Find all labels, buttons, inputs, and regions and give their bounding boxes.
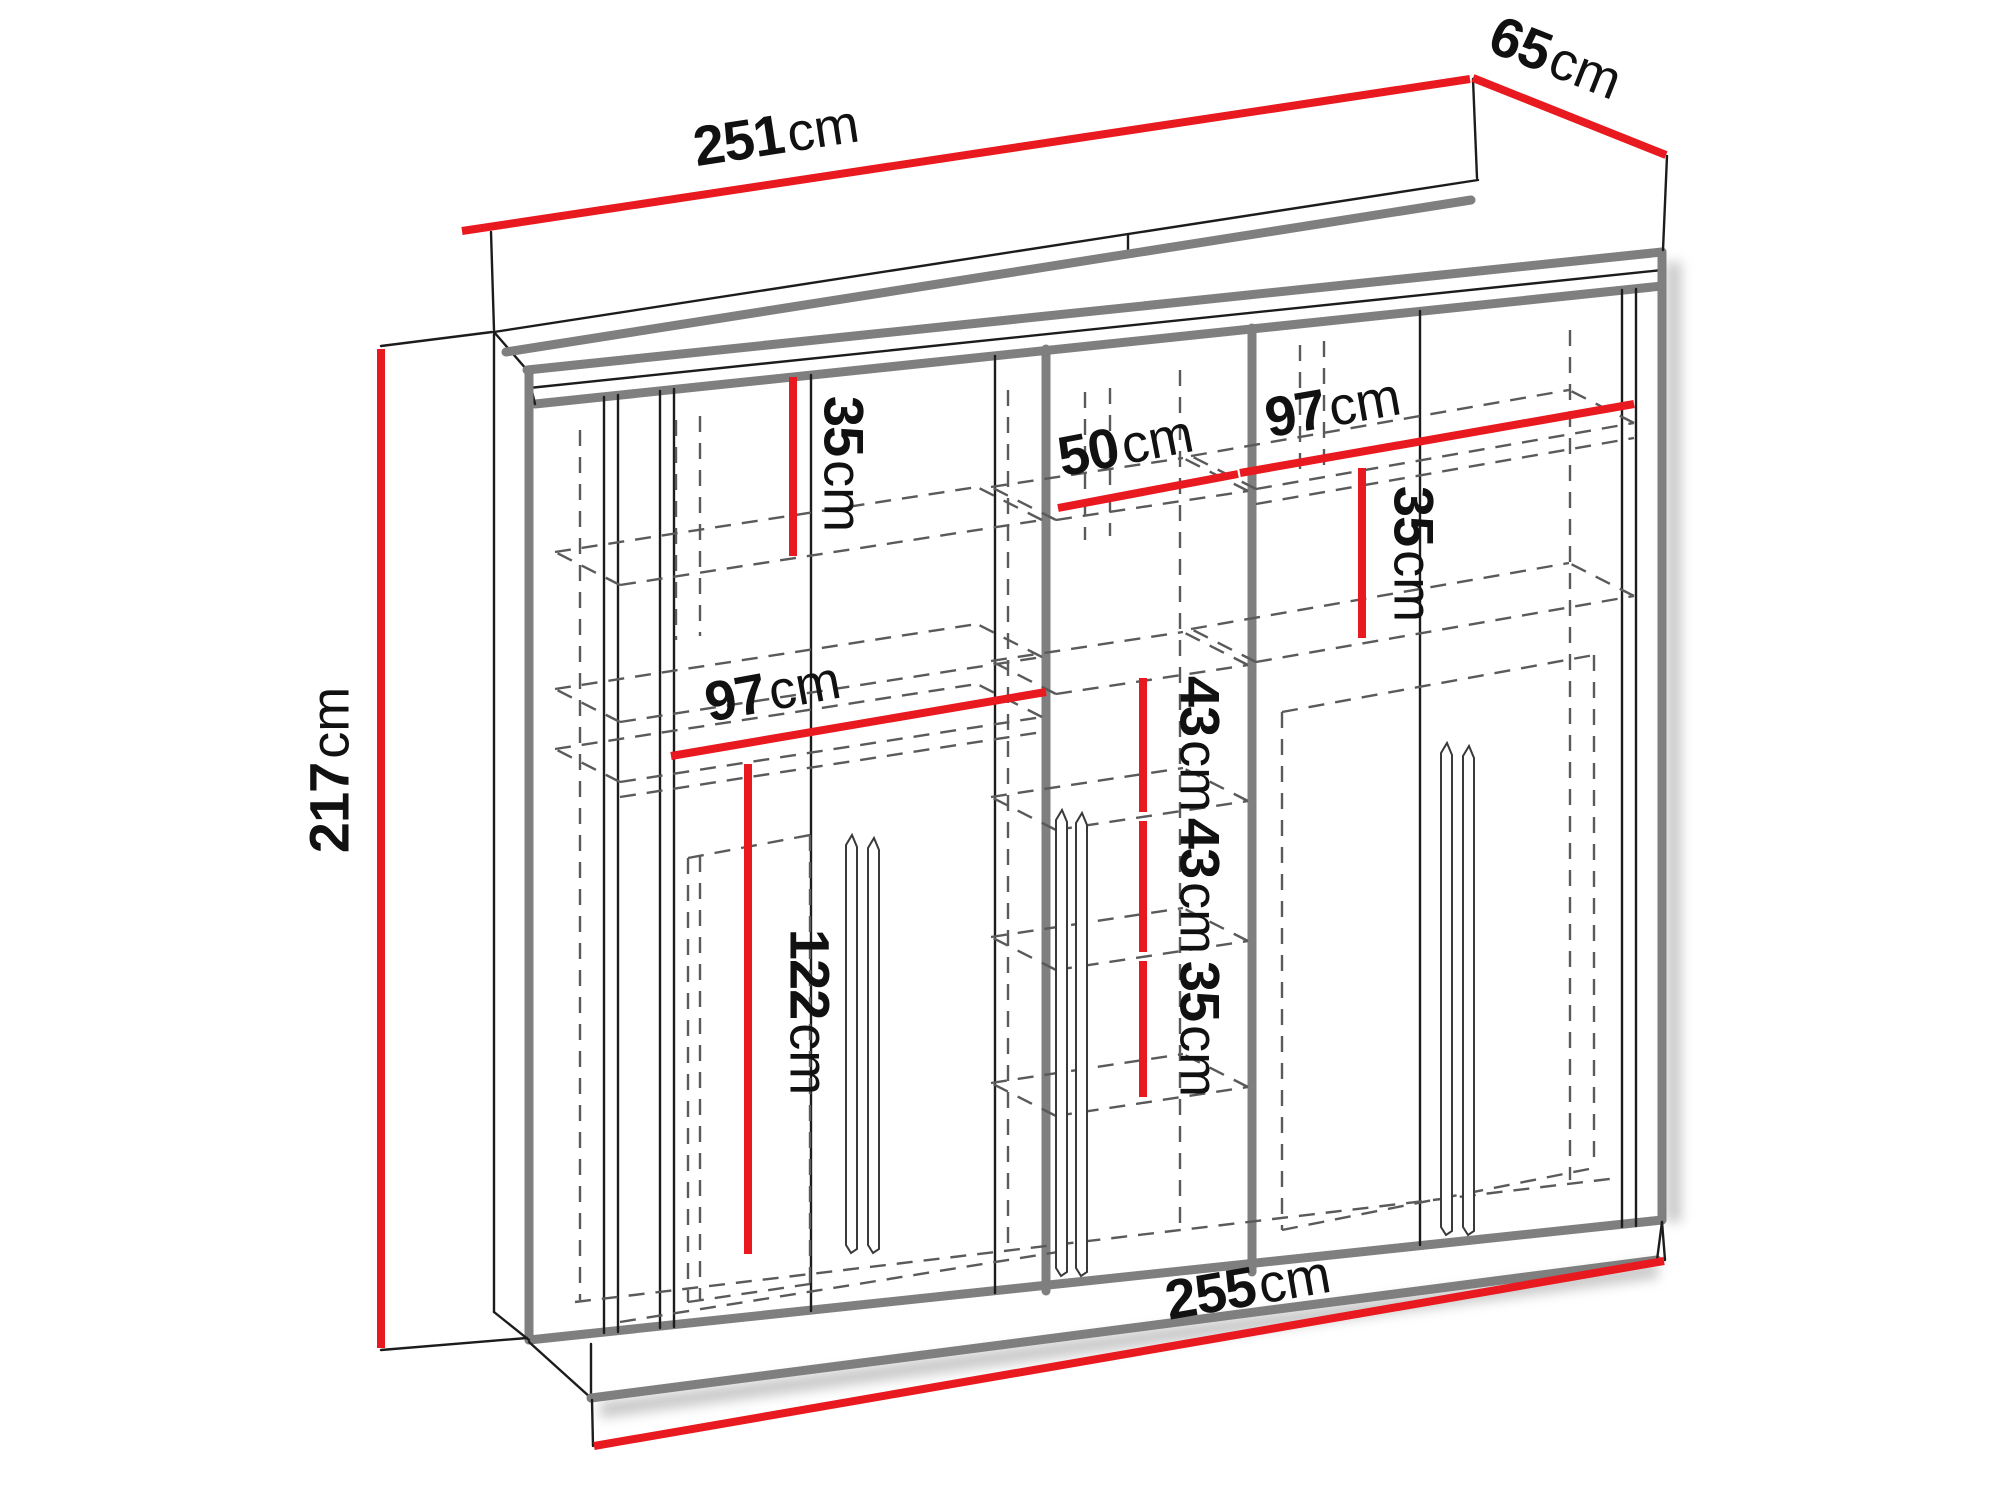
door-handle-bar [1441,743,1452,1235]
dimension-value: 97 [700,661,771,734]
dimension-value: 97 [1260,377,1330,450]
door-handle-bar [846,835,857,1253]
dimension-middle-shelf-gap-2-label: 43cm [1168,818,1231,954]
dimension-value: 251 [689,102,788,178]
dimension-annotations: 251cm65cm217cm255cm35cm50cm97cm35cm97cm1… [298,3,1666,1446]
dimension-left-section-width-label: 97cm [700,647,845,734]
dimension-width-top: 251cm [462,79,1470,231]
cabinet-left-side-panel [494,332,529,1340]
dimension-middle-shelf-gap-3: 35cm [1143,961,1231,1097]
cabinet-frame [529,252,1662,1340]
dimension-top-left-shelf-gap-label: 35cm [812,396,875,532]
dimension-middle-shelf-gap-1-label: 43cm [1168,676,1231,812]
dimension-unit: cm [301,687,361,759]
dimension-value: 43 [1168,818,1231,878]
dimension-value: 43 [1168,676,1231,736]
dimension-unit: cm [1382,550,1442,622]
door-handle-bar [1463,746,1474,1235]
diagram-canvas: 251cm65cm217cm255cm35cm50cm97cm35cm97cm1… [0,0,2000,1500]
dimension-height: 217cm [298,349,381,1348]
dimension-middle-section-width: 50cm [1052,400,1238,508]
dimension-width-bottom-line [594,1261,1664,1446]
dimension-unit: cm [812,460,872,532]
dimension-middle-shelf-gap-1: 43cm [1143,676,1231,812]
dimension-value: 35 [1382,486,1445,546]
dimension-middle-shelf-gap-2: 43cm [1143,818,1231,954]
dimension-unit: cm [1324,366,1405,438]
dimension-depth-label: 65cm [1481,3,1631,112]
door-handle-bar [868,838,879,1253]
dimension-top-left-shelf-gap: 35cm [793,377,875,556]
dimension-value: 35 [1168,961,1231,1021]
dimension-unit: cm [1168,882,1228,954]
dimension-value: 35 [812,396,875,456]
wardrobe-dimension-diagram: 251cm65cm217cm255cm35cm50cm97cm35cm97cm1… [0,0,2000,1500]
door-handle-bar [1056,810,1067,1276]
shelf [555,487,1042,585]
dimension-unit: cm [1254,1244,1335,1315]
dimension-width-top-label: 251cm [689,91,863,178]
dimension-value: 122 [778,929,841,1019]
dimension-unit: cm [1168,740,1228,812]
dimension-unit: cm [1116,403,1198,476]
dimension-middle-shelf-gap-3-label: 35cm [1168,961,1231,1097]
page: { "diagram": { "type": "furniture-dimens… [0,0,2000,1500]
door-handle-bar [1076,813,1087,1276]
dimension-unit: cm [778,1023,838,1095]
dimension-value: 217 [298,763,361,853]
dimension-hanging-space-height-label: 122cm [778,929,841,1095]
dimension-width-top-line [462,79,1470,231]
dimension-height-label: 217cm [298,687,361,853]
dimension-right-shelf-gap-label: 35cm [1382,486,1445,622]
dimension-unit: cm [763,650,845,722]
dimension-right-shelf-gap: 35cm [1362,468,1445,638]
dimension-middle-section-width-label: 50cm [1052,400,1198,488]
dimension-unit: cm [1168,1025,1228,1097]
dimension-unit: cm [1541,29,1630,111]
cabinet-cornice [527,252,1662,404]
dimension-depth: 65cm [1473,3,1666,155]
dimension-right-section-width-label: 97cm [1260,363,1405,449]
cabinet-interior-verticals [604,289,1636,1333]
dimension-unit: cm [783,94,863,164]
door-handles [846,743,1474,1276]
dimension-value: 50 [1052,415,1123,488]
